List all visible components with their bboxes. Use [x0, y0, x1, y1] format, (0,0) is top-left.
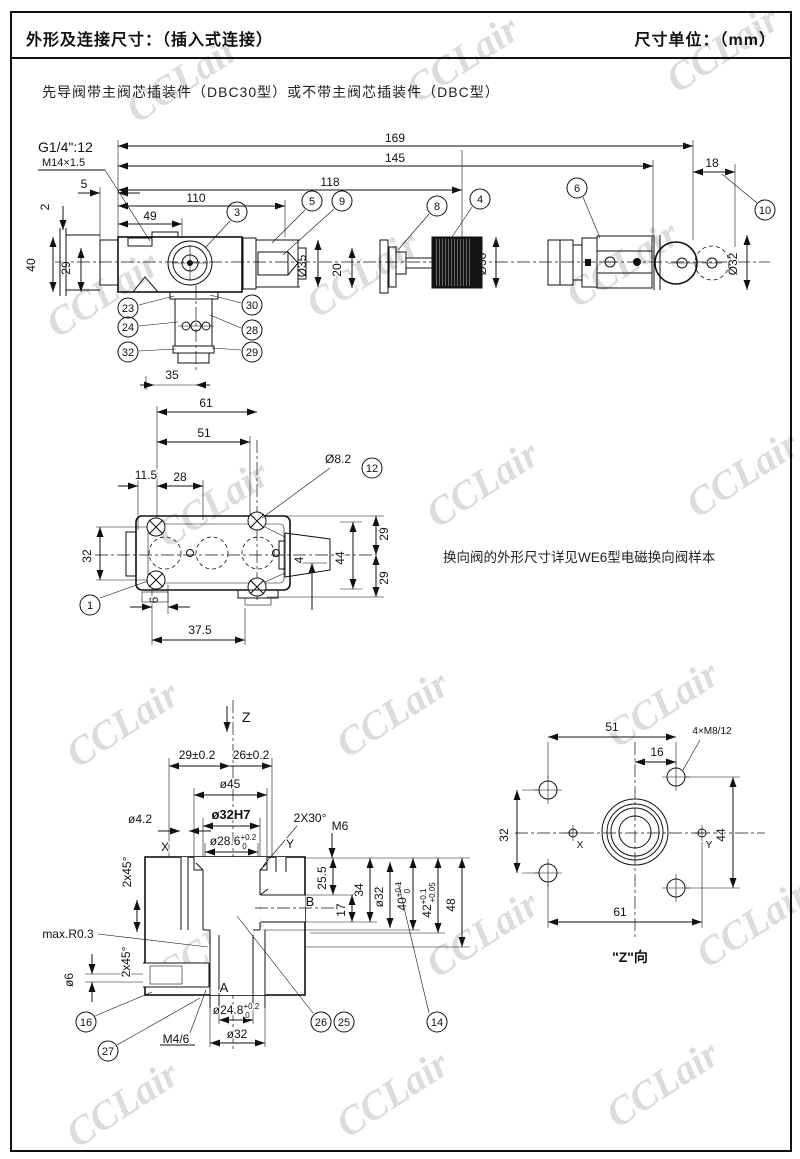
dim-dia45: ø45: [220, 777, 241, 791]
balloon-5: 5: [309, 196, 315, 208]
balloon-23: 23: [122, 303, 134, 315]
dim-40-tol: 40+0.10: [394, 881, 412, 911]
dim-42-tol: 42+0.1+0.05: [419, 882, 437, 918]
port-b-label: B: [306, 894, 315, 909]
dim-16-z: 16: [650, 745, 664, 759]
chamfer-2x45-bottom: 2x45°: [119, 946, 133, 977]
valve-body-geometry: [60, 228, 729, 372]
view4-geometry: [534, 763, 710, 902]
balloon-10: 10: [759, 205, 771, 217]
balloon-16: 16: [80, 1017, 92, 1029]
y-axis-label: Y: [286, 837, 294, 851]
dim-32-z: 32: [497, 828, 511, 842]
view2-valve-top: 61 51 28 11.5 Ø8.2 32 44 29 29 4 6 37.5 …: [80, 396, 391, 645]
balloon-26: 26: [315, 1017, 327, 1029]
dim-61: 61: [199, 396, 213, 410]
balloon-32: 32: [122, 347, 134, 359]
dim-169: 169: [385, 131, 405, 145]
dim-4: 4: [292, 556, 306, 563]
dim-dia32-bottom: ø32: [227, 1027, 248, 1041]
drawing-canvas: 169 145 118 110 49 5 2 40 29 18 Ø35 20 Ø…: [0, 0, 800, 1159]
balloon-6: 6: [574, 183, 580, 195]
dim-34: 34: [352, 883, 366, 897]
dim-17: 17: [334, 903, 348, 917]
balloon-4: 4: [477, 194, 483, 206]
dim-49: 49: [143, 209, 157, 223]
dim-32: 32: [80, 549, 94, 563]
balloon-29: 29: [246, 347, 258, 359]
dim-5: 5: [81, 177, 88, 191]
dim-118: 118: [320, 175, 339, 189]
balloon-24: 24: [122, 322, 134, 334]
dim-dia8_2: Ø8.2: [325, 452, 351, 466]
dim-dia32: Ø32: [726, 252, 740, 275]
thread-label: M14×1.5: [42, 157, 85, 169]
port-label: G1/4":12: [38, 139, 93, 155]
bolt-spec-label: 4×M8/12: [692, 726, 732, 737]
dim-48: 48: [444, 898, 458, 912]
z-view-caption: "Z"向: [612, 949, 648, 965]
dim-44: 44: [333, 551, 347, 565]
dim-35: 35: [165, 368, 179, 382]
dim-110: 110: [186, 191, 205, 205]
view1-dimension-lines: [53, 146, 747, 385]
dim-28: 28: [173, 470, 187, 484]
dim-44-z: 44: [714, 828, 728, 842]
dim-61-z: 61: [613, 905, 627, 919]
m6-label: M6: [332, 819, 349, 833]
dim-51-z: 51: [605, 720, 619, 734]
dim-145: 145: [385, 151, 405, 165]
m4-6-label: M4/6: [163, 1032, 190, 1046]
y-point-label: Y: [706, 840, 713, 851]
x-point-label: X: [577, 840, 584, 851]
dim-dia35: Ø35: [295, 254, 309, 277]
balloon-1: 1: [87, 600, 93, 612]
port-a-label: A: [220, 980, 229, 995]
dim-26pm: 26±0.2: [233, 748, 270, 762]
z-direction-label: Z: [242, 709, 251, 725]
view1-pilot-valve-side: 169 145 118 110 49 5 2 40 29 18 Ø35 20 Ø…: [24, 131, 775, 390]
view4-extension-lines: [522, 742, 740, 928]
balloon-14: 14: [431, 1017, 443, 1029]
dim-37_5: 37.5: [188, 623, 212, 637]
balloon-9: 9: [339, 196, 345, 208]
chamfer-2x45-top: 2x45°: [120, 856, 134, 887]
balloon-27: 27: [102, 1046, 114, 1058]
balloon-30: 30: [246, 300, 258, 312]
balloon-12: 12: [366, 463, 378, 475]
balloon-8: 8: [434, 201, 440, 213]
drawing-page: CCLairCCLairCCLairCCLairCCLairCCLairCCLa…: [0, 0, 800, 1159]
balloon-25: 25: [338, 1017, 350, 1029]
dim-dia4_2: ø4.2: [128, 812, 152, 826]
dim-dia32h7: ø32H7: [211, 807, 250, 822]
dim-dia32-groove: ø32: [372, 886, 386, 907]
dim-2: 2: [38, 203, 52, 210]
balloon-28: 28: [246, 325, 258, 337]
dim-11_5: 11.5: [135, 468, 158, 482]
dim-25_5: 25.5: [315, 866, 329, 890]
dim-29pm: 29±0.2: [179, 748, 216, 762]
dim-dia6: ø6: [62, 973, 76, 987]
max-r0_3-label: max.R0.3: [42, 927, 94, 941]
dim-20: 20: [330, 263, 344, 277]
x-axis-label: X: [161, 840, 169, 854]
dim-51: 51: [197, 426, 211, 440]
view4-z-direction: 51 16 4×M8/12 32 44 61 X Y "Z"向: [497, 720, 765, 965]
dim-40: 40: [24, 258, 38, 272]
dim-29-bottom: 29: [377, 571, 391, 585]
balloon-3: 3: [234, 207, 240, 219]
chamfer-2x30: 2X30°: [294, 811, 327, 825]
view2-dimension-lines: [100, 412, 376, 640]
view2-balloons: 12 1: [80, 458, 382, 615]
dim-29-top: 29: [377, 527, 391, 541]
dim-18: 18: [705, 156, 719, 170]
view3-cavity-section: Z: [42, 700, 470, 1061]
